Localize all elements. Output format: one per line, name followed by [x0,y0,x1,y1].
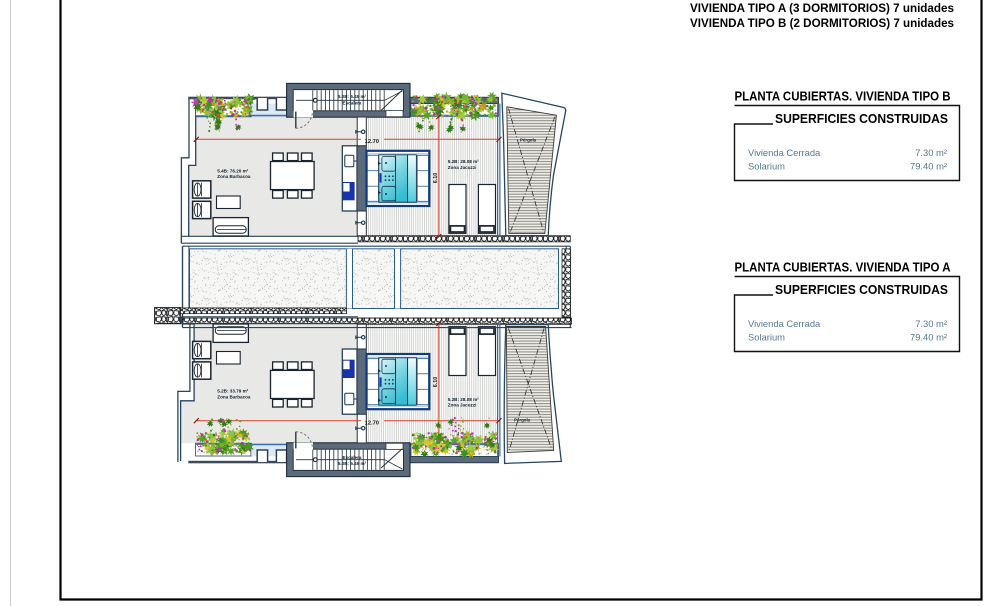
svg-text:VIVIENDA TIPO B (2 DORMITORIOS: VIVIENDA TIPO B (2 DORMITORIOS) 7 unidad… [690,16,954,30]
svg-text:Escalera: Escalera [343,455,362,460]
svg-text:Pérgola: Pérgola [520,138,537,143]
svg-text:SUPERFICIES CONSTRUIDAS: SUPERFICIES CONSTRUIDAS [775,111,948,126]
svg-text:SUPERFICIES CONSTRUIDAS: SUPERFICIES CONSTRUIDAS [775,282,948,297]
svg-text:5.4B: 76.20 m²: 5.4B: 76.20 m² [217,168,248,173]
svg-text:79.40 m²: 79.40 m² [910,161,947,172]
svg-text:Zona Jacuzzi: Zona Jacuzzi [448,403,477,408]
svg-text:Vivienda Cerrada: Vivienda Cerrada [748,147,821,158]
svg-text:79.40 m²: 79.40 m² [910,332,947,343]
svg-text:Pérgola: Pérgola [514,418,531,423]
svg-text:7.30 m²: 7.30 m² [915,147,947,158]
svg-text:6.10: 6.10 [433,173,439,184]
svg-text:VIVIENDA TIPO A (3 DORMITORIOS: VIVIENDA TIPO A (3 DORMITORIOS) 7 unidad… [690,1,954,15]
svg-text:5.0B: 5.49 m²: 5.0B: 5.49 m² [338,94,367,99]
svg-text:7.30 m²: 7.30 m² [915,318,947,329]
svg-text:Solarium: Solarium [748,161,785,172]
svg-text:5.0B: 5.49 m²: 5.0B: 5.49 m² [338,461,367,466]
svg-text:5.2B: 33.79 m²: 5.2B: 33.79 m² [217,389,248,394]
svg-text:Vivienda Cerrada: Vivienda Cerrada [748,318,821,329]
svg-text:5.2B: 28.08 m²: 5.2B: 28.08 m² [448,397,479,402]
svg-text:12.70: 12.70 [365,139,379,145]
svg-text:Escalera: Escalera [343,101,362,106]
svg-text:PLANTA CUBIERTAS. VIVIENDA TIP: PLANTA CUBIERTAS. VIVIENDA TIPO A [735,260,952,275]
svg-text:Zona Barbacoa: Zona Barbacoa [217,394,251,399]
svg-text:6.10: 6.10 [433,377,439,388]
svg-text:12.70: 12.70 [365,421,379,427]
svg-text:Solarium: Solarium [748,332,785,343]
svg-text:Zona Jacuzzi: Zona Jacuzzi [448,165,477,170]
svg-text:PLANTA CUBIERTAS. VIVIENDA TIP: PLANTA CUBIERTAS. VIVIENDA TIPO B [735,89,951,104]
svg-text:Zona Barbacoa: Zona Barbacoa [217,174,251,179]
svg-text:5.2B: 28.08 m²: 5.2B: 28.08 m² [448,159,479,164]
